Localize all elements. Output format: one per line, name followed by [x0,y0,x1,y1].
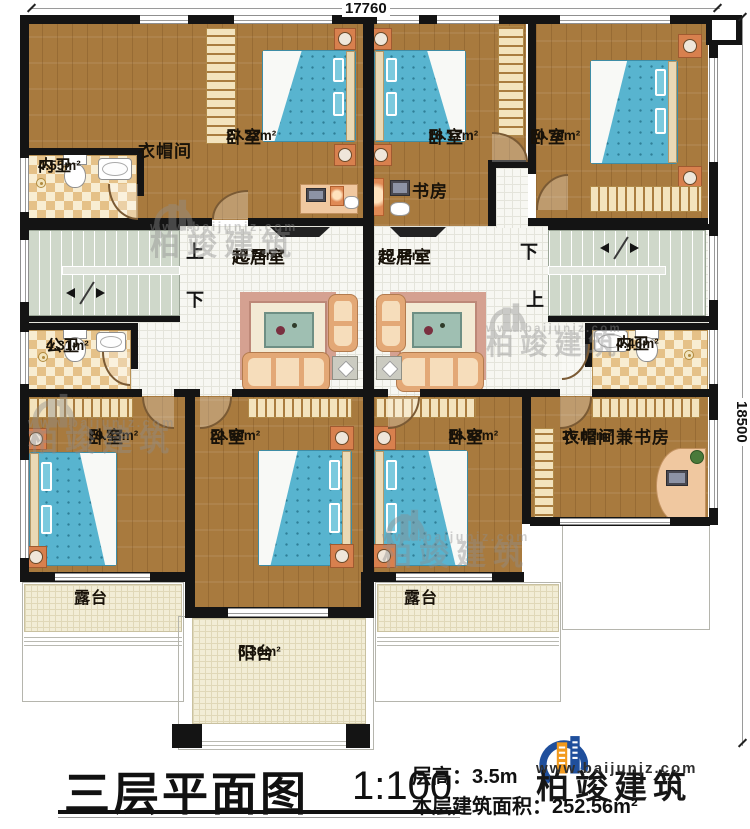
lamp-bedroom-tl [330,186,344,206]
end-table-living-right [376,356,402,380]
window [396,573,492,581]
stair-up-right: 上 [526,286,544,312]
dimension-tick [713,3,722,12]
pillow [386,460,397,490]
wall-stair-right-top [548,224,709,230]
table-decor [276,326,285,335]
window [560,518,670,525]
stair-down-right: 下 [520,238,538,264]
corner-notch-inner [712,20,736,40]
wall-ensuite-tl-top [20,148,144,155]
pillow [333,92,344,115]
sink-bath-public [96,332,126,352]
headboard [375,51,384,141]
floor-hall-notch-right [496,168,528,228]
pillow [655,108,666,135]
title-underline-thick [58,810,460,814]
window [709,420,718,508]
nightstand [330,426,354,450]
wall-bedroom-tr-left [528,24,536,174]
plan-title: 三层平面图 [64,758,309,824]
window [437,15,499,24]
chair-bedroom-tl [344,196,359,209]
balcony-railing [202,738,346,750]
chair-study [390,202,410,216]
window [560,15,670,24]
computer-study [390,180,410,196]
wall-bath-public-top [20,323,131,330]
stair-handrail-right [548,266,666,275]
dimension-tick [738,738,747,747]
nightstand [334,144,356,166]
floor-height-text: 层高：3.5m [412,760,518,789]
window [55,573,150,581]
bed-blanket [259,451,298,565]
nightstand [334,28,356,50]
nightstand [372,426,396,450]
end-table-living-left [332,356,358,380]
window [709,58,718,162]
stair-arrow-right [600,243,609,253]
sofa-living-left [242,352,330,392]
wall-stair-left-bottom [20,316,180,322]
window [228,608,328,617]
watermark-site: www.baijunjz.com [382,530,530,544]
window [709,236,718,300]
terrace-left-railing [24,634,182,647]
nightstand [678,34,702,58]
watermark-site: www.baijunjz.com [150,220,298,234]
watermark-site: www.baijunjz.com [486,322,622,335]
wardrobe-bedroom-tr [590,186,702,212]
pillow [386,92,397,115]
pillow [41,462,52,491]
armchairs-living-left [328,294,358,352]
wardrobe-cloakroom [206,28,236,144]
wardrobe-cloak-study-top [592,398,700,418]
wall-midrow-bottom-e [420,389,560,397]
pillow [655,69,666,96]
sofa-living-right [396,352,484,392]
window [20,460,29,558]
wall-midrow-bottom-c [232,389,364,397]
roof-outline-right [562,525,710,630]
wall-study-v [488,160,496,226]
balcony-post-right [346,724,370,748]
headboard [668,61,677,163]
bed-blanket [80,453,116,565]
coffee-table-living-left [264,312,314,348]
table-decor [440,323,445,328]
stair-arrow-left [66,288,75,298]
sink-ensuite-tl [98,158,132,180]
table-decor [292,323,297,328]
armchairs-living-right [376,294,406,352]
computer-bedroom-tl [306,188,326,202]
wall-protrusion-left [185,572,195,618]
coffee-table-living-right [412,312,462,348]
window [140,15,188,24]
wardrobe-bedroom-bm [248,398,352,418]
floor-balcony [192,618,366,724]
company-website: www.baijunjz.com [536,760,697,777]
stair-arrow-right2 [630,243,639,253]
stair-handrail-left [62,266,180,275]
drain-ensuite-tl [36,178,46,188]
wardrobe-bedroom-tm [498,26,524,136]
wardrobe-cloak-study-left [534,428,554,524]
plant-cloak-study [690,450,704,464]
balcony-post-left [172,724,202,748]
window [234,15,332,24]
wall-midrow-bottom-d [374,389,388,397]
pillow [329,460,340,490]
wall-center-spine [363,15,374,618]
nightstand [330,544,354,568]
window [709,330,718,384]
window [20,240,29,302]
pillow [386,58,397,81]
dimension-line-right [742,18,743,746]
window [20,158,29,212]
wall-protrusion-right [361,572,371,618]
pillow [333,58,344,81]
floor-plan-page: 内卫 4.55m² 衣帽间 卧室 27.22m² 卧室 18.17m² 书房 卧… [0,0,750,829]
pillow [41,505,52,534]
bed-blanket [591,61,627,163]
stair-down-left: 下 [186,286,204,312]
wall-bedroom-bl-right [185,389,195,572]
wall-bath-public-right [131,323,138,369]
dimension-top-value: 17760 [342,0,390,17]
pillow [329,503,340,533]
window [20,332,29,384]
watermark-site: www.baijunjz.com [28,416,176,430]
drain-ensuite-r [684,350,694,360]
wall-bedroom-br-right [522,389,531,524]
bed-bedroom-tr [590,60,678,164]
computer-cloak-study [666,470,688,486]
table-decor [424,326,433,335]
stair-arrow-left2 [96,288,105,298]
title-underline-thin [58,817,460,818]
dimension-right-value: 18500 [733,398,750,446]
wall-midrow-bottom-f [592,389,709,397]
headboard [346,51,355,141]
terrace-right-railing [377,634,559,647]
